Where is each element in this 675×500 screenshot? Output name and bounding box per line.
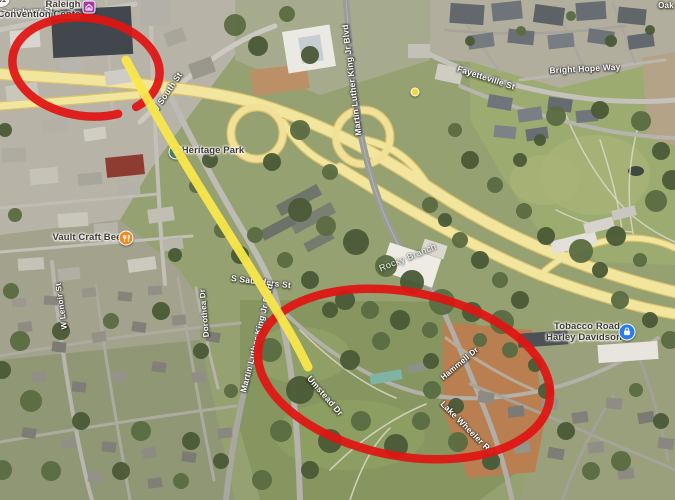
convention-center-marker[interactable]	[83, 1, 96, 14]
poi-label-harley-line2: Harley Davidson	[546, 333, 622, 343]
poi-label-vault-craft-beer: Vault Craft Bee	[52, 233, 121, 243]
satellite-imagery	[0, 0, 675, 500]
shopping-bag-icon	[623, 328, 632, 337]
poi-label-harley-line1: Tobacco Road	[554, 322, 620, 332]
landmark-icon	[86, 4, 93, 11]
tree-icon	[172, 148, 180, 156]
poi-label-convention-line2: Convention Cente	[0, 10, 80, 20]
heritage-park-marker[interactable]	[169, 145, 184, 160]
restaurant-icon	[122, 234, 130, 242]
vault-craft-beer-marker[interactable]	[119, 231, 134, 246]
harley-davidson-marker[interactable]	[619, 324, 636, 341]
road-label-oak-partial: Oak	[658, 2, 674, 10]
map-canvas[interactable]: S Salisbury St W South St Martin Luther …	[0, 0, 675, 500]
route-shield-number: 401	[0, 0, 6, 4]
poi-label-heritage-park: Heritage Park	[182, 146, 245, 156]
poi-dot-marker[interactable]	[411, 88, 420, 97]
